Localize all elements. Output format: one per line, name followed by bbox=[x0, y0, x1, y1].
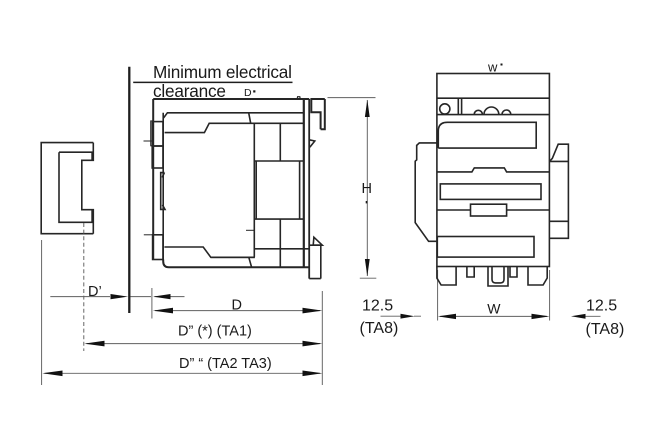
svg-text:clearance: clearance bbox=[153, 81, 226, 101]
svg-text:D” “ (TA2 TA3): D” “ (TA2 TA3) bbox=[179, 356, 272, 372]
svg-text:12.5: 12.5 bbox=[586, 297, 617, 314]
svg-text:12.5: 12.5 bbox=[362, 297, 393, 314]
svg-text:D” (*) (TA1): D” (*) (TA1) bbox=[178, 323, 252, 339]
svg-text:D: D bbox=[232, 298, 242, 314]
svg-text:W: W bbox=[487, 301, 501, 317]
svg-text:D’: D’ bbox=[88, 284, 102, 300]
svg-text:Minimum electrical: Minimum electrical bbox=[153, 62, 292, 82]
svg-text:(TA8): (TA8) bbox=[586, 321, 625, 338]
svg-text:H: H bbox=[362, 181, 372, 197]
svg-text:(TA8): (TA8) bbox=[360, 320, 399, 337]
svg-text:D: D bbox=[244, 87, 252, 99]
svg-text:w: w bbox=[487, 60, 498, 75]
